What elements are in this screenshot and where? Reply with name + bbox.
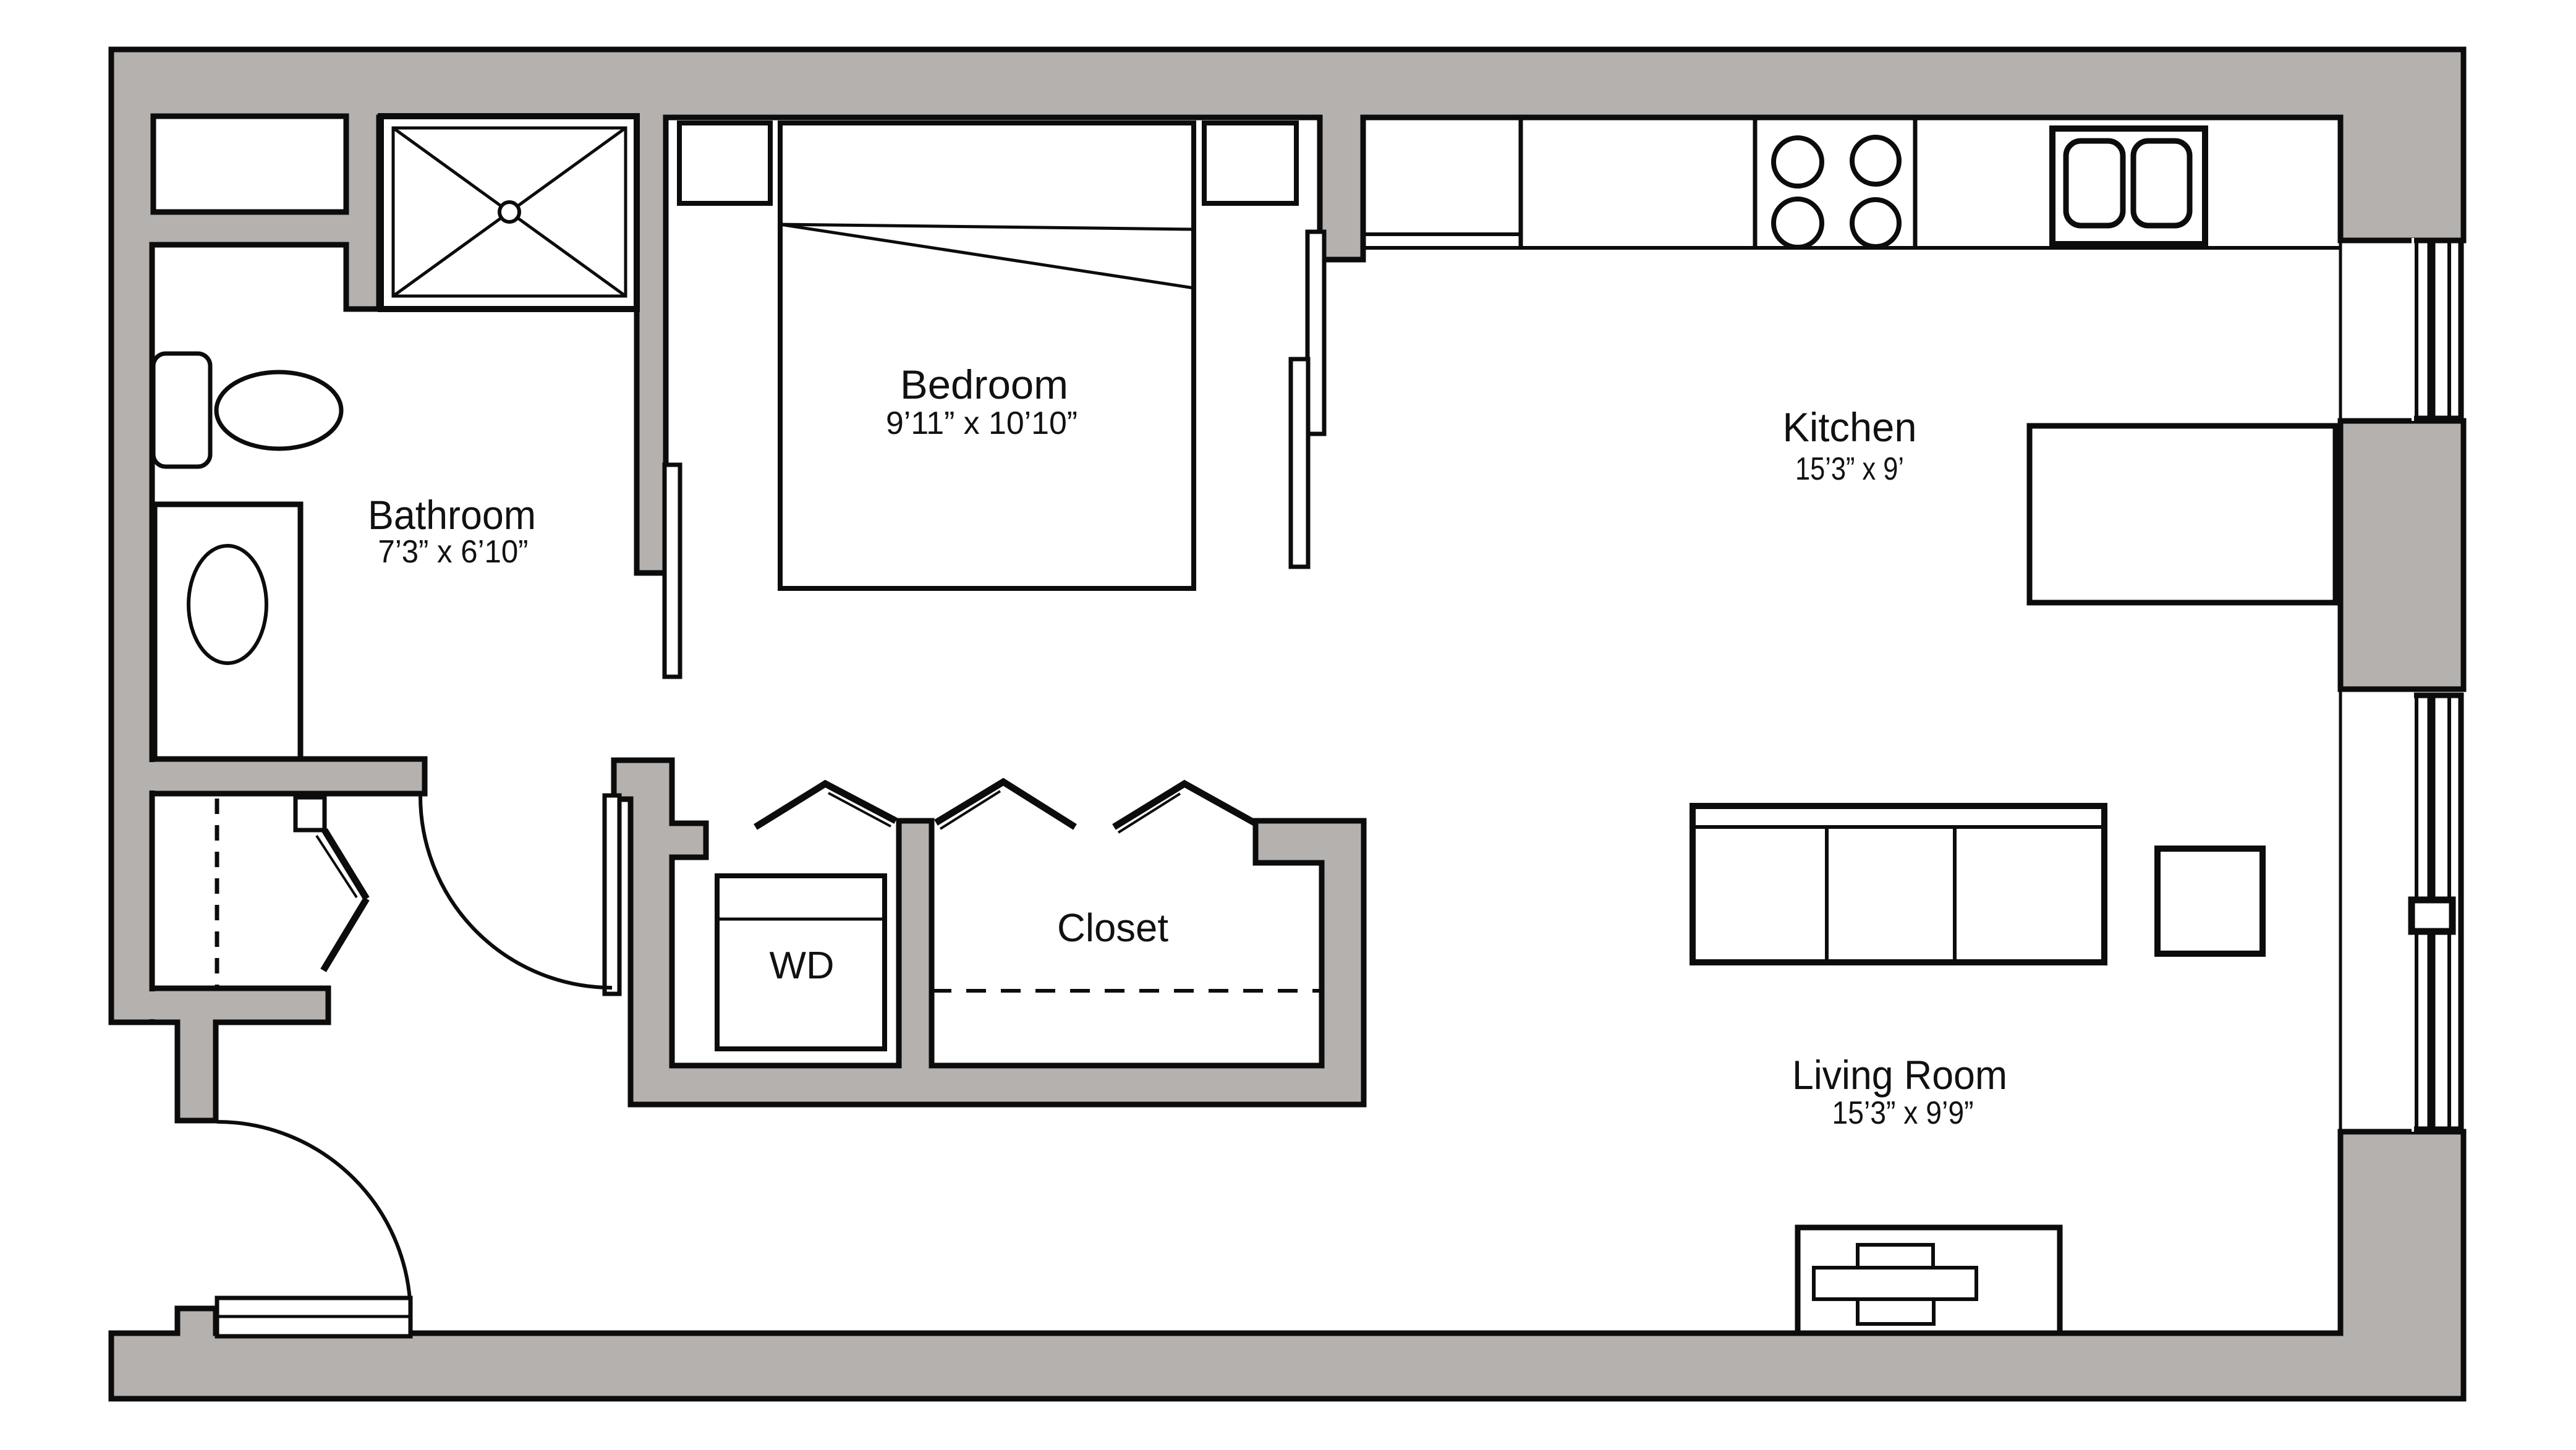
- svg-text:15’3” x 9’: 15’3” x 9’: [1795, 451, 1904, 487]
- svg-text:7’3” x 6’10”: 7’3” x 6’10”: [378, 534, 529, 570]
- svg-text:Bedroom: Bedroom: [900, 362, 1068, 407]
- svg-text:15’3” x 9’9”: 15’3” x 9’9”: [1832, 1095, 1974, 1131]
- svg-text:Kitchen: Kitchen: [1783, 404, 1917, 450]
- svg-text:Living Room: Living Room: [1792, 1052, 2007, 1098]
- svg-text:Bathroom: Bathroom: [368, 492, 536, 538]
- svg-text:WD: WD: [770, 944, 835, 987]
- svg-text:9’11” x 10’10”: 9’11” x 10’10”: [886, 405, 1078, 441]
- svg-text:Closet: Closet: [1057, 905, 1168, 950]
